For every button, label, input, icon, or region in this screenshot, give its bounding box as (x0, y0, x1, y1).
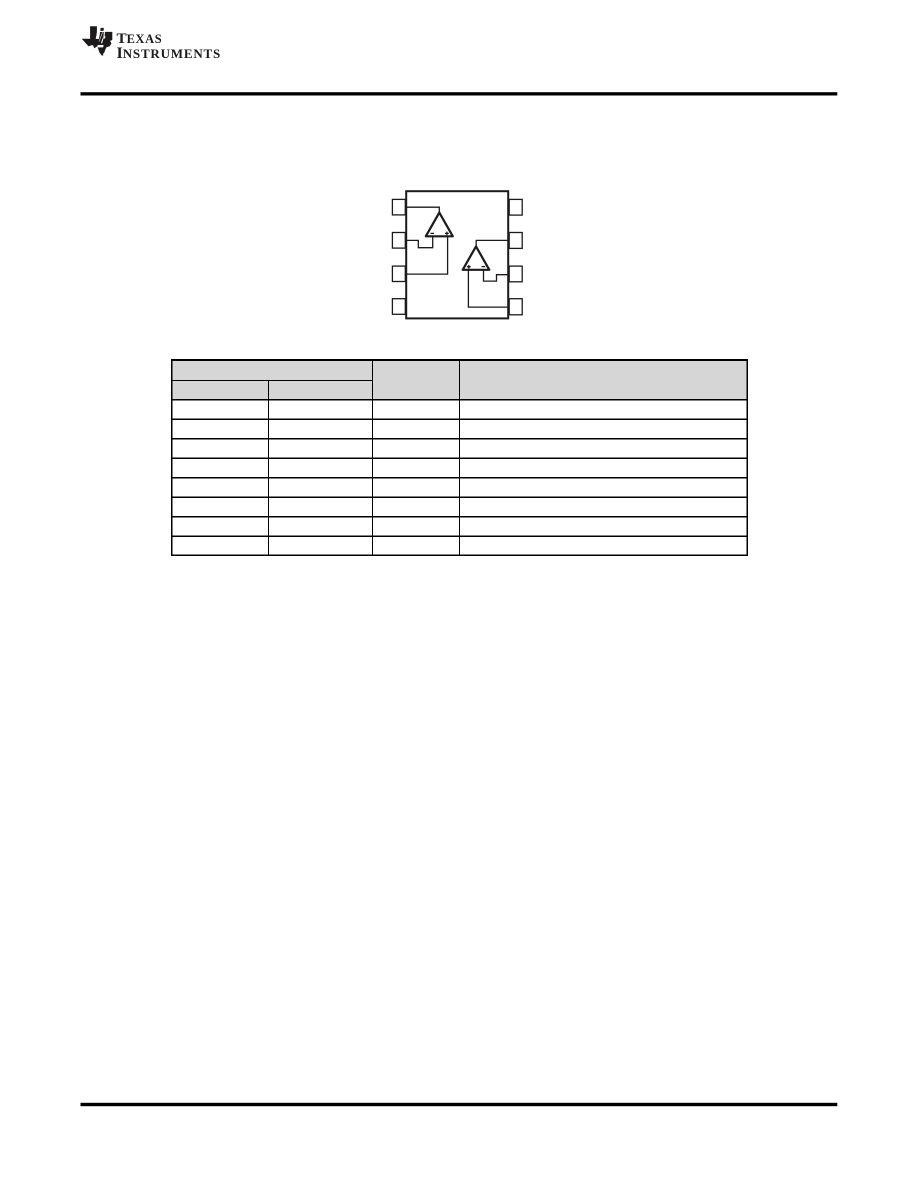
svg-text:TEXAS: TEXAS (117, 30, 163, 47)
svg-text:INSTRUMENTS: INSTRUMENTS (117, 45, 222, 62)
